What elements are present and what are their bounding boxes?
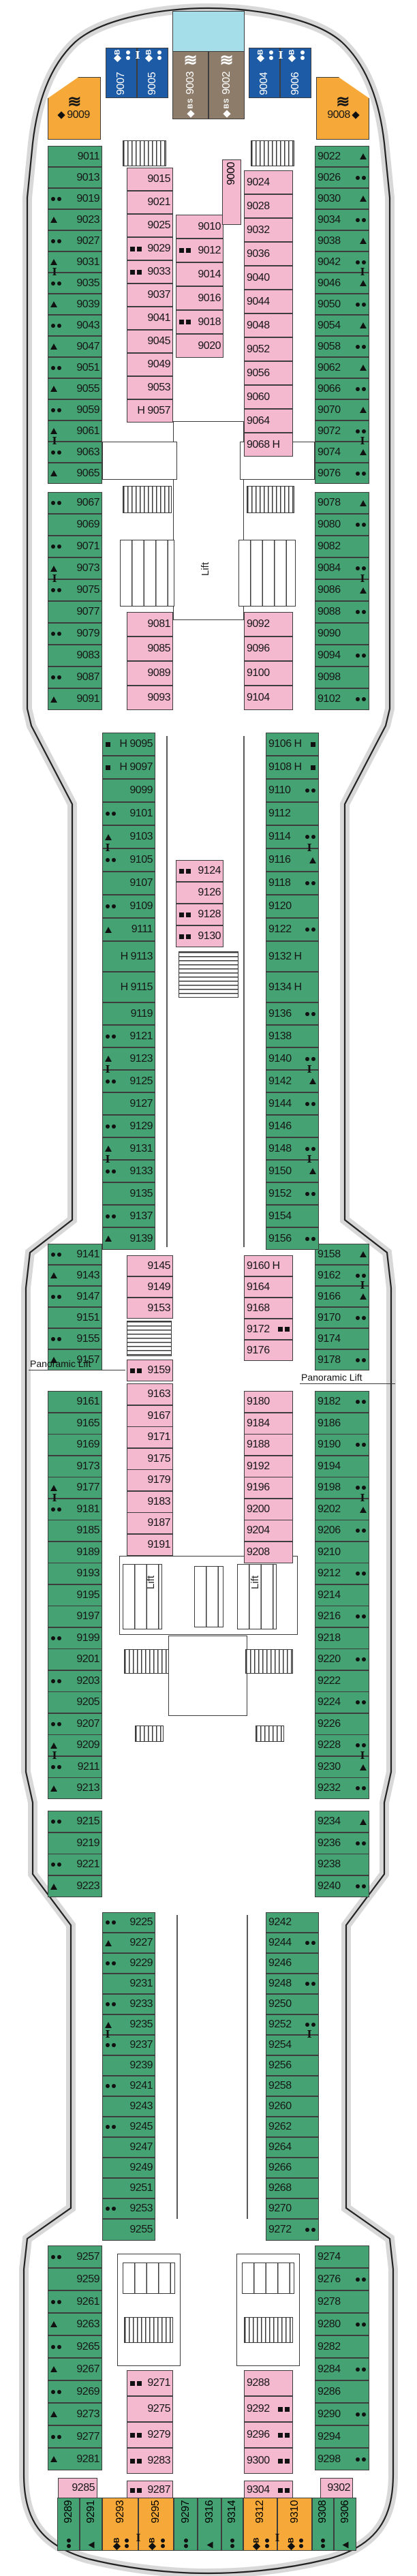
cabin-9251[interactable]: 9251	[102, 2178, 155, 2198]
cabin-9056[interactable]: 9056	[244, 361, 293, 385]
cabin-number: 9199	[76, 1632, 99, 1644]
cabin-9060[interactable]: 9060	[244, 385, 293, 409]
cabin-9164[interactable]: 9164	[244, 1276, 293, 1298]
cabin-9255[interactable]: 9255	[102, 2219, 155, 2241]
cabin-9244[interactable]: 9244	[266, 1933, 319, 1953]
cabin-9047[interactable]: 9047	[48, 336, 102, 357]
cabin-9293[interactable]: 9293B	[102, 2498, 138, 2551]
cabin-number: 9161	[76, 1396, 99, 1408]
cabin-9119[interactable]: 9119	[102, 1002, 155, 1025]
cabin-9085[interactable]: 9085	[127, 637, 173, 661]
cabin-9248[interactable]: 9248	[266, 1974, 319, 1994]
cabin-9045[interactable]: 9045	[127, 330, 173, 353]
cabin-9110[interactable]: 9110	[266, 779, 319, 802]
cabin-9182[interactable]: 9182	[315, 1391, 369, 1413]
cabin-9269[interactable]: 9269	[48, 2380, 102, 2403]
cabin-9276[interactable]: 9276	[315, 2268, 369, 2290]
cabin-9051[interactable]: 9051	[48, 357, 102, 378]
cabin-9188[interactable]: 9188	[244, 1434, 293, 1456]
cabin-9126[interactable]: 9126	[176, 882, 223, 904]
cabin-9193[interactable]: 9193	[48, 1563, 102, 1584]
cabin-9053[interactable]: 9053	[127, 376, 173, 399]
cabin-9294[interactable]: 9294	[315, 2425, 369, 2448]
cabin-9068-H[interactable]: 9068 H	[244, 433, 293, 457]
cabin-9215[interactable]: 9215	[48, 1811, 102, 1833]
cabin-9156[interactable]: 9156	[266, 1227, 319, 1250]
cabin-number: 9294	[318, 2431, 341, 2443]
cabin-9160-H[interactable]: 9160 H	[244, 1255, 293, 1276]
cabin-9221[interactable]: 9221	[48, 1854, 102, 1875]
cabin-9106-H[interactable]: 9106 H	[266, 733, 319, 756]
triangle-icon	[50, 2411, 57, 2417]
cabin-9153[interactable]: 9153	[127, 1298, 173, 1319]
cabin-9306[interactable]: 9306	[334, 2498, 356, 2551]
dot-icon	[362, 2367, 366, 2372]
cabin-9187[interactable]: 9187	[127, 1512, 173, 1534]
cabin-9094[interactable]: 9094	[315, 645, 369, 666]
cabin-9036[interactable]: 9036	[244, 242, 293, 266]
connecting-cabins-icon: I	[104, 2029, 112, 2040]
cabin-9189[interactable]: 9189	[48, 1542, 102, 1563]
cabin-9071[interactable]: 9071	[48, 536, 102, 557]
cabin-9127[interactable]: 9127	[102, 1092, 155, 1115]
cabin-9246[interactable]: 9246	[266, 1953, 319, 1974]
cabin-9069[interactable]: 9069	[48, 514, 102, 536]
cabin-9052[interactable]: 9052	[244, 337, 293, 361]
triangle-icon	[309, 857, 316, 863]
cabin-9080[interactable]: 9080	[315, 514, 369, 536]
cabin-9207[interactable]: 9207	[48, 1713, 102, 1735]
cabin-9277[interactable]: 9277	[48, 2425, 102, 2448]
cabin-9132-H[interactable]: 9132 H	[266, 941, 319, 972]
cabin-9100[interactable]: 9100	[244, 661, 293, 686]
triangle-icon	[360, 280, 367, 286]
cabin-9122[interactable]: 9122	[266, 918, 319, 941]
cabin-9283[interactable]: 9283	[127, 2448, 173, 2474]
cabin-9300[interactable]: 9300	[244, 2448, 293, 2474]
cabin-9175[interactable]: 9175	[127, 1448, 173, 1470]
cabin-9201[interactable]: 9201	[48, 1649, 102, 1670]
square-icon	[285, 1327, 290, 1332]
cabin-9199[interactable]: 9199	[48, 1627, 102, 1649]
cabin-9058[interactable]: 9058	[315, 336, 369, 357]
cabin-9015[interactable]: 9015	[127, 168, 173, 191]
cabin-9267[interactable]: 9267	[48, 2358, 102, 2380]
cabin-9302[interactable]: 9302	[320, 2478, 353, 2498]
cabin-9250[interactable]: 9250	[266, 1994, 319, 2014]
cabin-9234[interactable]: 9234	[315, 1811, 369, 1833]
cabin-9308[interactable]: 9308	[312, 2498, 334, 2551]
cabin-9149[interactable]: 9149	[127, 1276, 173, 1298]
cabin-9037[interactable]: 9037	[127, 283, 173, 307]
cabin-9231[interactable]: 9231	[102, 1974, 155, 1994]
cabin-9183[interactable]: 9183	[127, 1491, 173, 1513]
cabin-number: 9085	[147, 643, 170, 655]
cabin-9238[interactable]: 9238	[315, 1854, 369, 1875]
cabin-9139[interactable]: 9139	[102, 1227, 155, 1250]
cabin-9184[interactable]: 9184	[244, 1413, 293, 1435]
cabin-9010[interactable]: 9010	[176, 215, 223, 239]
cabin-9219[interactable]: 9219	[48, 1833, 102, 1854]
cabin-number: 9290	[318, 2408, 341, 2421]
cabin-9044[interactable]: 9044	[244, 290, 293, 313]
cabin-number: 9010	[198, 221, 221, 233]
cabin-9032[interactable]: 9032	[244, 218, 293, 242]
cabin-9173[interactable]: 9173	[48, 1456, 102, 1477]
cabin-9192[interactable]: 9192	[244, 1456, 293, 1477]
cabin-9120[interactable]: 9120	[266, 895, 319, 918]
cabin-9239[interactable]: 9239	[102, 2055, 155, 2076]
cabin-9024[interactable]: 9024	[244, 170, 293, 194]
stairs-icon	[124, 2317, 173, 2343]
cabin-9180[interactable]: 9180	[244, 1391, 293, 1413]
cabin-9298[interactable]: 9298	[315, 2448, 369, 2470]
cabin-9064[interactable]: 9064	[244, 409, 293, 433]
cabin-H-9057[interactable]: H 9057	[127, 399, 173, 423]
cabin-9169[interactable]: 9169	[48, 1434, 102, 1456]
cabin-9226[interactable]: 9226	[315, 1713, 369, 1735]
dot-icon	[57, 1765, 61, 1769]
cabin-9281[interactable]: 9281	[48, 2448, 102, 2470]
cabin-9249[interactable]: 9249	[102, 2158, 155, 2178]
cabin-9090[interactable]: 9090	[315, 623, 369, 645]
cabin-9203[interactable]: 9203	[48, 1670, 102, 1692]
cabin-9163[interactable]: 9163	[127, 1383, 173, 1405]
cabin-number: 9201	[76, 1653, 99, 1666]
cabin-9038[interactable]: 9038	[315, 230, 369, 251]
cabin-H-9095[interactable]: H 9095	[102, 733, 155, 756]
cabin-9128[interactable]: 9128	[176, 904, 223, 925]
cabin-9275[interactable]: 9275	[127, 2396, 173, 2422]
cabin-9152[interactable]: 9152	[266, 1182, 319, 1205]
cabin-9220[interactable]: 9220	[315, 1649, 369, 1670]
cabin-9030[interactable]: 9030	[315, 188, 369, 209]
cabin-9168[interactable]: 9168	[244, 1298, 293, 1319]
dot-icon	[106, 1961, 110, 1965]
cabin-9200[interactable]: 9200	[244, 1499, 293, 1520]
cabin-9028[interactable]: 9028	[244, 194, 293, 218]
cabin-9170[interactable]: 9170	[315, 1307, 369, 1328]
cabin-9109[interactable]: 9109	[102, 895, 155, 918]
cabin-9280[interactable]: 9280	[315, 2313, 369, 2335]
cabin-9284[interactable]: 9284	[315, 2358, 369, 2380]
cabin-9227[interactable]: 9227	[102, 1933, 155, 1953]
cabin-9062[interactable]: 9062	[315, 357, 369, 378]
cabin-H-9097[interactable]: H 9097	[102, 756, 155, 779]
cabin-9155[interactable]: 9155	[48, 1328, 102, 1349]
cabin-9266[interactable]: 9266	[266, 2158, 319, 2178]
cabin-9055[interactable]: 9055	[48, 378, 102, 399]
dot-icon	[51, 501, 55, 505]
cabin-9135[interactable]: 9135	[102, 1182, 155, 1205]
lift-label: Lift	[200, 562, 211, 576]
cabin-9076[interactable]: 9076	[315, 463, 369, 484]
cabin-9268[interactable]: 9268	[266, 2178, 319, 2198]
cabin-9039[interactable]: 9039	[48, 294, 102, 315]
cabin-9098[interactable]: 9098	[315, 666, 369, 688]
cabin-9129[interactable]: 9129	[102, 1115, 155, 1137]
cabin-9270[interactable]: 9270	[266, 2198, 319, 2219]
cabin-9290[interactable]: 9290	[315, 2403, 369, 2425]
two-dots-icon	[124, 2539, 129, 2548]
cabin-9004[interactable]: B9004	[249, 48, 280, 98]
cabin-9214[interactable]: 9214	[315, 1584, 369, 1606]
cabin-9082[interactable]: 9082	[315, 536, 369, 557]
cabin-9271[interactable]: 9271	[127, 2370, 173, 2396]
cabin-number: 9220	[318, 1653, 341, 1666]
cabin-number: 9083	[76, 649, 99, 662]
cabin-9232[interactable]: 9232	[315, 1777, 369, 1799]
cabin-9264[interactable]: 9264	[266, 2137, 319, 2158]
cabin-9136[interactable]: 9136	[266, 1002, 319, 1025]
cabin-9089[interactable]: 9089	[127, 661, 173, 686]
dot-icon	[356, 1316, 360, 1320]
cabin-9079[interactable]: 9079	[48, 623, 102, 645]
cabin-9253[interactable]: 9253	[102, 2198, 155, 2219]
cabin-9213[interactable]: 9213	[48, 1777, 102, 1799]
cabin-9304[interactable]: 9304	[244, 2481, 293, 2500]
cabin-9087[interactable]: 9087	[48, 666, 102, 688]
cabin-9225[interactable]: 9225	[102, 1912, 155, 1933]
square-icon	[130, 270, 135, 275]
cabin-9178[interactable]: 9178	[315, 1349, 369, 1370]
cabin-9002[interactable]: ≋9002BS	[208, 51, 245, 119]
cabin-9077[interactable]: 9077	[48, 601, 102, 623]
cabin-9179[interactable]: 9179	[127, 1469, 173, 1491]
dot-icon	[112, 2002, 116, 2006]
cabin-9134-H[interactable]: 9134 H	[266, 972, 319, 1002]
cabin-9107[interactable]: 9107	[102, 872, 155, 895]
cabin-9019[interactable]: 9019	[48, 188, 102, 209]
cabin-9104[interactable]: 9104	[244, 686, 293, 710]
cabin-9185[interactable]: 9185	[48, 1520, 102, 1542]
cabin-9292[interactable]: 9292	[244, 2396, 293, 2422]
cabin-9108-H[interactable]: 9108 H	[266, 756, 319, 779]
cabin-9262[interactable]: 9262	[266, 2117, 319, 2137]
cabin-9014[interactable]: 9014	[176, 262, 223, 286]
cabin-9018[interactable]: 9018	[176, 310, 223, 334]
cabin-9099[interactable]: 9099	[102, 779, 155, 802]
cabin-9236[interactable]: 9236	[315, 1833, 369, 1854]
cabin-9049[interactable]: 9049	[127, 353, 173, 376]
cabin-9288[interactable]: 9288	[244, 2370, 293, 2396]
cabin-9021[interactable]: 9021	[127, 191, 173, 214]
cabin-9240[interactable]: 9240	[315, 1875, 369, 1897]
cabin-9147[interactable]: 9147	[48, 1286, 102, 1307]
cabin-9191[interactable]: 9191	[127, 1534, 173, 1556]
cabin-9208[interactable]: 9208	[244, 1542, 293, 1563]
cabin-9312[interactable]: 9312B	[243, 2498, 277, 2551]
dot-icon	[311, 1012, 315, 1016]
cabin-9102[interactable]: 9102	[315, 688, 369, 710]
cabin-9223[interactable]: 9223	[48, 1875, 102, 1897]
cabin-9174[interactable]: 9174	[315, 1328, 369, 1349]
cabin-9295[interactable]: 9295B	[138, 2498, 174, 2551]
cabin-9296[interactable]: 9296	[244, 2422, 293, 2448]
cabin-9158[interactable]: 9158	[315, 1244, 369, 1265]
cabin-number: 9177	[76, 1482, 99, 1494]
cabin-9310[interactable]: 9310B	[277, 2498, 312, 2551]
cabin-9194[interactable]: 9194	[315, 1456, 369, 1477]
cabin-9206[interactable]: 9206	[315, 1520, 369, 1542]
cabin-9222[interactable]: 9222	[315, 1670, 369, 1692]
dot-icon	[57, 2300, 61, 2304]
cabin-9247[interactable]: 9247	[102, 2137, 155, 2158]
cabin-9040[interactable]: 9040	[244, 266, 293, 290]
triangle-icon	[360, 587, 367, 594]
cabin-9314[interactable]: 9314	[221, 2498, 243, 2551]
cabin-9118[interactable]: 9118	[266, 872, 319, 895]
cabin-9282[interactable]: 9282	[315, 2335, 369, 2358]
cabin-9274[interactable]: 9274	[315, 2245, 369, 2268]
cabin-9165[interactable]: 9165	[48, 1413, 102, 1435]
cabin-9242[interactable]: 9242	[266, 1912, 319, 1933]
cabin-9050[interactable]: 9050	[315, 294, 369, 315]
cabin-9216[interactable]: 9216	[315, 1606, 369, 1627]
cabin-9263[interactable]: 9263	[48, 2313, 102, 2335]
cabin-9141[interactable]: 9141	[48, 1244, 102, 1265]
cabin-9091[interactable]: 9091	[48, 688, 102, 710]
cabin-9197[interactable]: 9197	[48, 1606, 102, 1627]
cabin-9022[interactable]: 9022	[315, 146, 369, 167]
cabin-9205[interactable]: 9205	[48, 1691, 102, 1713]
cabin-9138[interactable]: 9138	[266, 1025, 319, 1047]
cabin-9265[interactable]: 9265	[48, 2335, 102, 2358]
cabin-9289[interactable]: 9289	[57, 2498, 80, 2551]
cabin-9172[interactable]: 9172	[244, 1319, 293, 1340]
cabin-9043[interactable]: 9043	[48, 315, 102, 336]
dot-icon	[311, 2023, 315, 2027]
cabin-9241[interactable]: 9241	[102, 2076, 155, 2096]
cabin-9070[interactable]: 9070	[315, 399, 369, 420]
cabin-9093[interactable]: 9093	[127, 686, 173, 710]
cabin-9048[interactable]: 9048	[244, 313, 293, 337]
cabin-9145[interactable]: 9145	[127, 1255, 173, 1276]
connecting-cabins-icon: I	[50, 1751, 59, 1761]
cabin-9316[interactable]: 9316	[198, 2498, 221, 2551]
cabin-9196[interactable]: 9196	[244, 1477, 293, 1499]
cabin-9229[interactable]: 9229	[102, 1953, 155, 1974]
cabin-9176[interactable]: 9176	[244, 1340, 293, 1361]
cabin-9029[interactable]: 9029	[127, 237, 173, 260]
cabin-9278[interactable]: 9278	[315, 2290, 369, 2313]
cabin-9190[interactable]: 9190	[315, 1434, 369, 1456]
cabin-9025[interactable]: 9025	[127, 214, 173, 237]
cabin-number: 9012	[198, 245, 221, 257]
cabin-9212[interactable]: 9212	[315, 1563, 369, 1584]
cabin-9081[interactable]: 9081	[127, 612, 173, 637]
triangle-icon	[50, 2456, 57, 2462]
cabin-9146[interactable]: 9146	[266, 1115, 319, 1137]
cabin-9154[interactable]: 9154	[266, 1205, 319, 1227]
dot-icon	[57, 632, 61, 636]
cabin-9101[interactable]: 9101	[102, 802, 155, 825]
cabin-9167[interactable]: 9167	[127, 1405, 173, 1427]
cabin-9007[interactable]: B9007	[106, 48, 137, 98]
cabin-9260[interactable]: 9260	[266, 2096, 319, 2117]
cabin-9159[interactable]: 9159	[127, 1360, 173, 1381]
cabin-9121[interactable]: 9121	[102, 1025, 155, 1047]
cabin-9078[interactable]: 9078	[315, 492, 369, 514]
cabin-9258[interactable]: 9258	[266, 2076, 319, 2096]
cabin-9261[interactable]: 9261	[48, 2290, 102, 2313]
cabin-9059[interactable]: 9059	[48, 399, 102, 420]
cabin-9161[interactable]: 9161	[48, 1391, 102, 1413]
cabin-9111[interactable]: 9111	[102, 918, 155, 941]
cabin-9096[interactable]: 9096	[244, 637, 293, 661]
cabin-9171[interactable]: 9171	[127, 1426, 173, 1448]
cabin-9279[interactable]: 9279	[127, 2422, 173, 2448]
cabin-9224[interactable]: 9224	[315, 1691, 369, 1713]
cabin-9130[interactable]: 9130	[176, 925, 223, 947]
cabin-9003[interactable]: ≋9003BS	[172, 51, 208, 119]
cabin-9210[interactable]: 9210	[315, 1542, 369, 1563]
cabin-9000[interactable]: 9000	[222, 159, 241, 225]
cabin-9112[interactable]: 9112	[266, 802, 319, 825]
cabin-9243[interactable]: 9243	[102, 2096, 155, 2117]
cabin-9287[interactable]: 9287	[127, 2481, 173, 2500]
cabin-9054[interactable]: 9054	[315, 315, 369, 336]
cabin-H-9115[interactable]: H 9115	[102, 972, 155, 1002]
cabin-H-9113[interactable]: H 9113	[102, 941, 155, 972]
cabin-9016[interactable]: 9016	[176, 286, 223, 310]
cabin-9143[interactable]: 9143	[48, 1265, 102, 1286]
cabin-9151[interactable]: 9151	[48, 1307, 102, 1328]
cabin-number: 9170	[318, 1312, 341, 1324]
cabin-9233[interactable]: 9233	[102, 1994, 155, 2014]
cabin-9092[interactable]: 9092	[244, 612, 293, 637]
cabin-number: 9141	[76, 1248, 99, 1261]
cabin-9124[interactable]: 9124	[176, 860, 223, 882]
cabin-9020[interactable]: 9020	[176, 334, 223, 358]
cabin-9256[interactable]: 9256	[266, 2055, 319, 2076]
cabin-9137[interactable]: 9137	[102, 1205, 155, 1227]
cabin-9285[interactable]: 9285	[58, 2478, 97, 2498]
cabin-9273[interactable]: 9273	[48, 2403, 102, 2425]
cabin-9033[interactable]: 9033	[127, 260, 173, 283]
cabin-9023[interactable]: 9023	[48, 209, 102, 230]
triangle-icon	[50, 217, 57, 223]
cabin-9204[interactable]: 9204	[244, 1520, 293, 1542]
cabin-9297[interactable]: 9297	[174, 2498, 198, 2551]
cabin-9272[interactable]: 9272	[266, 2219, 319, 2241]
cabin-9065[interactable]: 9065	[48, 463, 102, 484]
cabin-number: 9213	[76, 1782, 99, 1794]
cabin-9144[interactable]: 9144	[266, 1092, 319, 1115]
cabin-9012[interactable]: 9012	[176, 239, 223, 262]
cabin-9034[interactable]: 9034	[315, 209, 369, 230]
cabin-9259[interactable]: 9259	[48, 2268, 102, 2290]
cabin-9186[interactable]: 9186	[315, 1413, 369, 1435]
cabin-9041[interactable]: 9041	[127, 307, 173, 330]
connecting-cabins-icon: I	[104, 843, 112, 853]
cabin-9011[interactable]: 9011	[48, 146, 102, 167]
cabin-9083[interactable]: 9083	[48, 645, 102, 666]
cabin-9291[interactable]: 9291	[80, 2498, 102, 2551]
cabin-9088[interactable]: 9088	[315, 601, 369, 623]
cabin-9257[interactable]: 9257	[48, 2245, 102, 2268]
cabin-9026[interactable]: 9026	[315, 167, 369, 188]
cabin-9067[interactable]: 9067	[48, 492, 102, 514]
cabin-9066[interactable]: 9066	[315, 378, 369, 399]
cabin-9286[interactable]: 9286	[315, 2380, 369, 2403]
cabin-9218[interactable]: 9218	[315, 1627, 369, 1649]
cabin-9195[interactable]: 9195	[48, 1584, 102, 1606]
cabin-9245[interactable]: 9245	[102, 2117, 155, 2137]
cabin-9027[interactable]: 9027	[48, 230, 102, 251]
cabin-number: 9264	[268, 2141, 292, 2153]
cabin-9013[interactable]: 9013	[48, 167, 102, 188]
